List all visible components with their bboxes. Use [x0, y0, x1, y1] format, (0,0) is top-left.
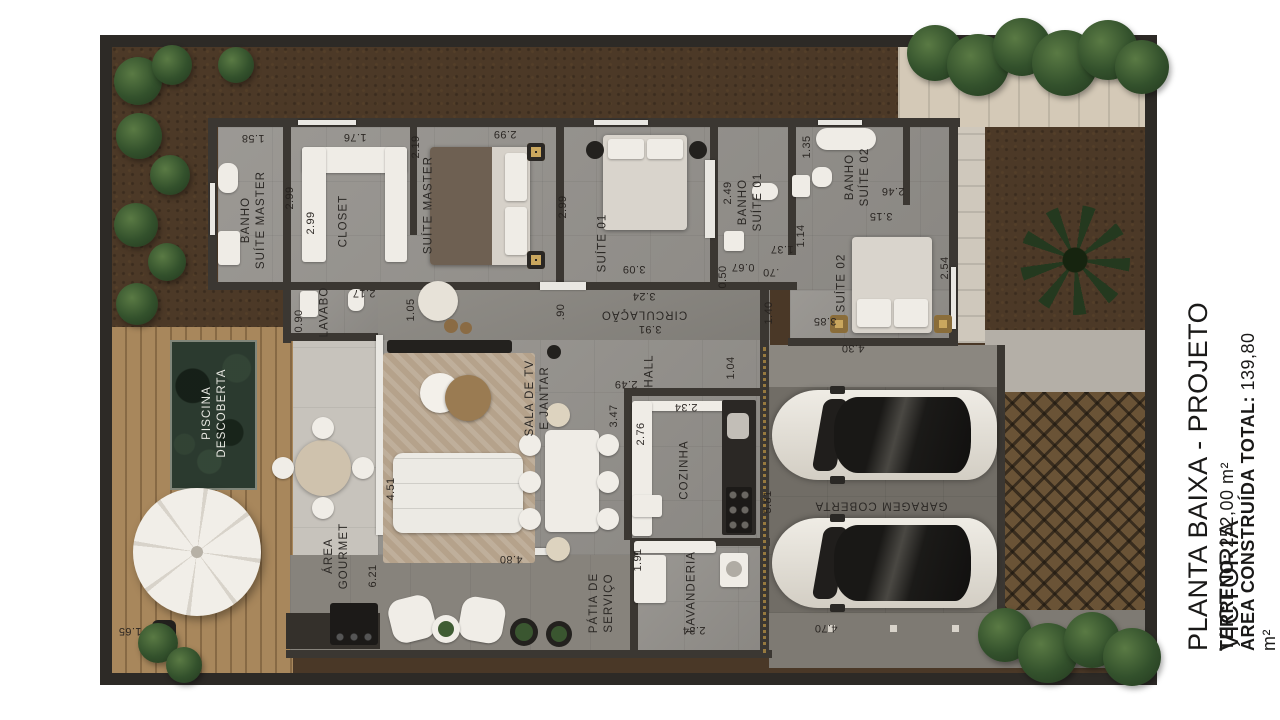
lounge-chair [418, 281, 458, 321]
room-label-hall: HALL [643, 354, 658, 387]
room-label-banho-suite-02: BANHO SUÍTE 02 [843, 148, 873, 207]
dim-circulacao-width: 3.24 [632, 290, 655, 302]
garden-plant [218, 47, 254, 83]
wall [286, 650, 772, 658]
nightstand-lamp [586, 141, 604, 159]
gourmet-chair [312, 497, 334, 519]
dim-sala-width: 4.80 [499, 553, 522, 565]
dim-banho-01-height: 2.49 [722, 181, 734, 204]
dining-table [545, 430, 599, 532]
dim-banho-master-height: 2.99 [284, 186, 296, 209]
pillow [857, 299, 891, 327]
dim-suite-01-width: 3.09 [622, 263, 645, 275]
dim-banho-01-a: 0.67 [731, 261, 754, 273]
dim-banho-01-d: 0.50 [717, 265, 729, 288]
wardrobe [385, 147, 407, 262]
dim-banho-01-width: 1.37 [770, 243, 793, 255]
gourmet-chair [352, 457, 374, 479]
dining-chair [597, 508, 619, 530]
room-label-suite-01: SUÍTE 01 [596, 214, 611, 273]
dim-hall-width: 2.49 [614, 378, 637, 390]
washer-drum [726, 561, 742, 577]
dim-closet-height: 2.99 [305, 211, 317, 234]
floor-plan: BANHO SUÍTE MASTER CLOSET SUÍTE MASTER S… [100, 35, 1157, 685]
dining-chair [597, 434, 619, 456]
door-opening [540, 282, 586, 290]
dim-circulacao-length: 3.91 [638, 323, 661, 335]
dim-lavanderia-height: 1.91 [632, 548, 644, 571]
shower-glass [705, 160, 715, 238]
side-stool [444, 319, 458, 333]
umbrella [133, 488, 261, 616]
wall [290, 333, 378, 341]
dim-banho-01-c: 1.14 [795, 224, 807, 247]
gourmet-table [295, 440, 351, 496]
plant [551, 626, 567, 642]
dim-hall-right: 1.04 [725, 356, 737, 379]
wall [788, 338, 958, 346]
pillow [505, 207, 527, 255]
room-label-lavanderia: LAVANDERIA [685, 551, 700, 633]
dim-banho-master-width: 1.58 [241, 132, 264, 144]
dim-suite-02-a: 3.85 [813, 315, 836, 327]
room-label-cozinha: COZINHA [678, 440, 693, 499]
wall [624, 388, 632, 540]
dining-chair [519, 434, 541, 456]
garden-plant [150, 155, 190, 195]
terreno-value: 252,00 m² [1217, 462, 1237, 553]
dim-cozinha-height: 2.76 [635, 422, 647, 445]
nightstand-lamp [527, 143, 545, 161]
glass-door-west [376, 335, 383, 535]
terreno-line: TERRENO: 252,00 m² [1217, 418, 1238, 651]
window [210, 183, 215, 235]
dim-suite-02-width: 3.15 [869, 210, 892, 222]
pillow [608, 139, 644, 159]
dim-lavabo-width: 2.17 [352, 287, 375, 299]
room-label-banho-suite-01: BANHO SUÍTE 01 [736, 173, 766, 232]
dining-chair [546, 537, 570, 561]
cooktop [726, 487, 752, 533]
speaker [547, 345, 561, 359]
wall [283, 118, 291, 343]
coffee-table-wood [445, 375, 491, 421]
palm-tree [1020, 205, 1130, 315]
plant [515, 623, 533, 641]
garage-entry-strip [769, 345, 1000, 387]
wall [208, 282, 288, 290]
dining-chair [519, 508, 541, 530]
garden-plant [116, 283, 158, 325]
side-stool [460, 322, 472, 334]
dim-suite-01-length: 2.99 [557, 195, 569, 218]
dim-garage-width: 4.70 [814, 622, 837, 634]
room-label-banho-suite-master: BANHO SUÍTE MASTER [239, 171, 269, 269]
dim-sala-door: .90 [555, 304, 567, 321]
dim-suite-master-length: 2.19 [410, 135, 422, 158]
toilet [218, 163, 238, 193]
window [818, 120, 862, 125]
gourmet-chair [272, 457, 294, 479]
room-label-area-gourmet: ÁREA GOURMET [322, 523, 352, 589]
gourmet-chair [312, 417, 334, 439]
garden-plant [152, 45, 192, 85]
dim-closet-width: 1.76 [343, 131, 366, 143]
room-label-garagem: GARAGEM COBERTA [814, 498, 947, 513]
dim-garage-height: 5.81 [762, 490, 774, 513]
diamond-paving [1005, 392, 1147, 610]
room-label-closet: CLOSET [337, 195, 352, 248]
vanity-sink [218, 231, 240, 265]
dim-banho-02-length: 2.46 [881, 185, 904, 197]
dim-gourmet-height: 6.21 [367, 564, 379, 587]
terreno-label: TERRENO: [1217, 553, 1237, 651]
room-label-lavabo: LAVABO [318, 287, 333, 338]
dining-chair [597, 471, 619, 493]
paving-marker [952, 625, 959, 632]
dim-closet-door: 1.05 [405, 298, 417, 321]
vanity-sink [792, 175, 810, 197]
bbq-grill [330, 603, 378, 645]
dim-sala-height: 3.47 [608, 404, 620, 427]
dim-suite-02-b: 4.30 [841, 342, 864, 354]
walkway-right [985, 330, 1147, 392]
area-construida-line: ÁREA CONSTRUÍDA TOTAL: 139,80 m² [1238, 306, 1280, 651]
room-label-piscina: PISCINA DESCOBERTA [200, 368, 230, 457]
room-label-sala: SALA DE TV E JANTAR [523, 360, 553, 437]
garden-plant [116, 113, 162, 159]
kitchen-sink [727, 413, 749, 439]
dim-lavanderia-width: 2.34 [682, 624, 705, 636]
window [298, 120, 356, 125]
dim-cozinha-width: 2.34 [674, 401, 697, 413]
wardrobe [302, 147, 326, 262]
plan-frame [100, 35, 112, 685]
nightstand-lamp [689, 141, 707, 159]
room-label-patia-servico: PÁTIA DE SERVIÇO [587, 573, 617, 634]
car [772, 518, 997, 608]
paving-marker [890, 625, 897, 632]
area-construida-label: ÁREA CONSTRUÍDA TOTAL: [1238, 396, 1258, 651]
entry-path [958, 127, 985, 343]
plan-frame [100, 673, 1157, 685]
room-label-circulacao: CIRCULAÇÃO [601, 307, 687, 322]
pillow [505, 153, 527, 201]
dim-sala-length: 4.51 [385, 477, 397, 500]
sofa [393, 453, 523, 533]
wall [997, 345, 1005, 611]
garden-plant [148, 243, 186, 281]
dim-banho-02-width: 1.35 [801, 135, 813, 158]
wall [624, 388, 769, 396]
dining-chair [519, 471, 541, 493]
room-label-suite-master: SUÍTE MASTER [422, 156, 437, 254]
fridge [632, 495, 662, 517]
nightstand-lamp [527, 251, 545, 269]
dim-lavabo-height: 0.90 [293, 309, 305, 332]
hedge-bush [1115, 40, 1169, 94]
nightstand-lamp [934, 315, 952, 333]
window [594, 120, 648, 125]
dim-hall-door: 1.40 [763, 301, 775, 324]
garden-plant [166, 647, 202, 683]
room-label-suite-02: SUÍTE 02 [835, 254, 850, 313]
plan-frame [1145, 35, 1157, 685]
dim-suite-master-width: 2.99 [493, 128, 516, 140]
garden-plant [114, 203, 158, 247]
hedge-bush [1103, 628, 1161, 686]
vanity-sink [724, 231, 744, 251]
tv-console [387, 340, 512, 353]
car [772, 390, 997, 480]
dim-suite-02-height: 2.54 [939, 256, 951, 279]
dim-banho-01-b: .70 [763, 266, 780, 278]
plant [438, 621, 454, 637]
pillow [647, 139, 683, 159]
toilet [812, 167, 832, 187]
pillow [894, 299, 928, 327]
laundry-counter [634, 541, 716, 553]
dim-gourmet-width: 1.65 [118, 625, 141, 637]
